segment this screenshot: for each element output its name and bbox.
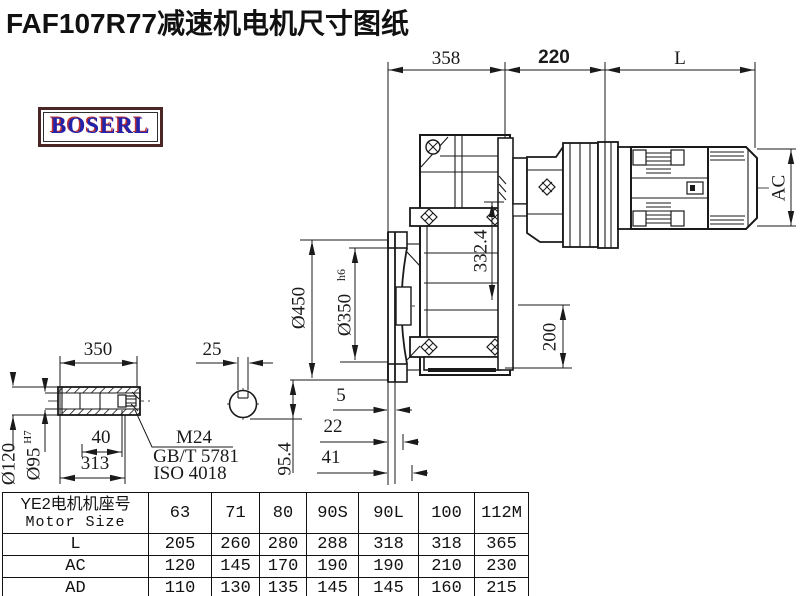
dim-350: 350	[84, 339, 113, 360]
table-cell: 288	[307, 534, 359, 556]
dim-95-4: 95.4	[275, 442, 296, 476]
dim-220: 220	[538, 47, 570, 68]
col-header: 90L	[359, 493, 419, 534]
keyway	[118, 395, 126, 407]
table-row: L 205 260 280 288 318 318 365	[3, 534, 529, 556]
dim-25: 25	[203, 339, 222, 360]
table-row: AC 120 145 170 190 190 210 230	[3, 556, 529, 578]
label-m24: M24	[176, 427, 212, 448]
motor-size-table: YE2电机机座号 Motor Size 63 71 80 90S 90L 100…	[2, 492, 529, 596]
drawing-sheet: FAF107R77减速机电机尺寸图纸 BOSERL	[0, 0, 800, 596]
dim-200: 200	[540, 323, 561, 352]
dim-332-4: 332.4	[471, 229, 492, 272]
motor	[618, 147, 757, 229]
fan-cover	[708, 147, 757, 229]
table-cell: 280	[260, 534, 307, 556]
table-cell: 215	[475, 578, 529, 596]
table-row: AD 110 130 135 145 145 160 215	[3, 578, 529, 596]
dim-358: 358	[432, 48, 461, 69]
table-cell: 205	[149, 534, 212, 556]
header-en: Motor Size	[3, 514, 148, 532]
table-header-row: YE2电机机座号 Motor Size 63 71 80 90S 90L 100…	[3, 493, 529, 534]
row-label: L	[3, 534, 149, 556]
table-cell: 160	[419, 578, 475, 596]
dim-41: 41	[322, 447, 341, 468]
table-cell: 120	[149, 556, 212, 578]
label-iso4018: ISO 4018	[153, 463, 226, 484]
table-cell: 145	[307, 578, 359, 596]
table-cell: 210	[419, 556, 475, 578]
col-header: 90S	[307, 493, 359, 534]
row-label: AD	[3, 578, 149, 596]
output-flange	[388, 232, 420, 485]
col-header: 112M	[475, 493, 529, 534]
table-cell: 230	[475, 556, 529, 578]
dim-5: 5	[336, 385, 346, 406]
table-cell: 145	[359, 578, 419, 596]
table-cell: 145	[212, 556, 260, 578]
dim-40: 40	[92, 427, 111, 448]
col-header: 100	[419, 493, 475, 534]
dim-95: Ø95	[24, 448, 45, 481]
table-cell: 318	[419, 534, 475, 556]
col-header: 80	[260, 493, 307, 534]
dim-AC: AC	[769, 175, 790, 201]
dim-350h6-tol: h6	[334, 269, 348, 281]
gearbox-housing	[410, 135, 513, 375]
table-cell: 135	[260, 578, 307, 596]
dim-450: Ø450	[289, 287, 310, 329]
table-cell: 110	[149, 578, 212, 596]
shaft-detail	[58, 387, 257, 418]
dim-350h6: Ø350	[335, 294, 356, 336]
shaft-end-view	[230, 391, 257, 418]
table-header-label: YE2电机机座号 Motor Size	[3, 493, 149, 534]
row-label: AC	[3, 556, 149, 578]
dim-L: L	[674, 48, 686, 69]
table-cell: 260	[212, 534, 260, 556]
col-header: 63	[149, 493, 212, 534]
dim-313: 313	[81, 453, 110, 474]
input-adapter	[513, 142, 618, 248]
header-cn: YE2电机机座号	[3, 495, 148, 514]
col-header: 71	[212, 493, 260, 534]
table-cell: 365	[475, 534, 529, 556]
dim-120: Ø120	[0, 443, 20, 485]
dim-22: 22	[324, 416, 343, 437]
table-cell: 190	[307, 556, 359, 578]
table-cell: 130	[212, 578, 260, 596]
table-cell: 170	[260, 556, 307, 578]
table-cell: 190	[359, 556, 419, 578]
dim-95-tol: H7	[22, 430, 34, 444]
table-cell: 318	[359, 534, 419, 556]
